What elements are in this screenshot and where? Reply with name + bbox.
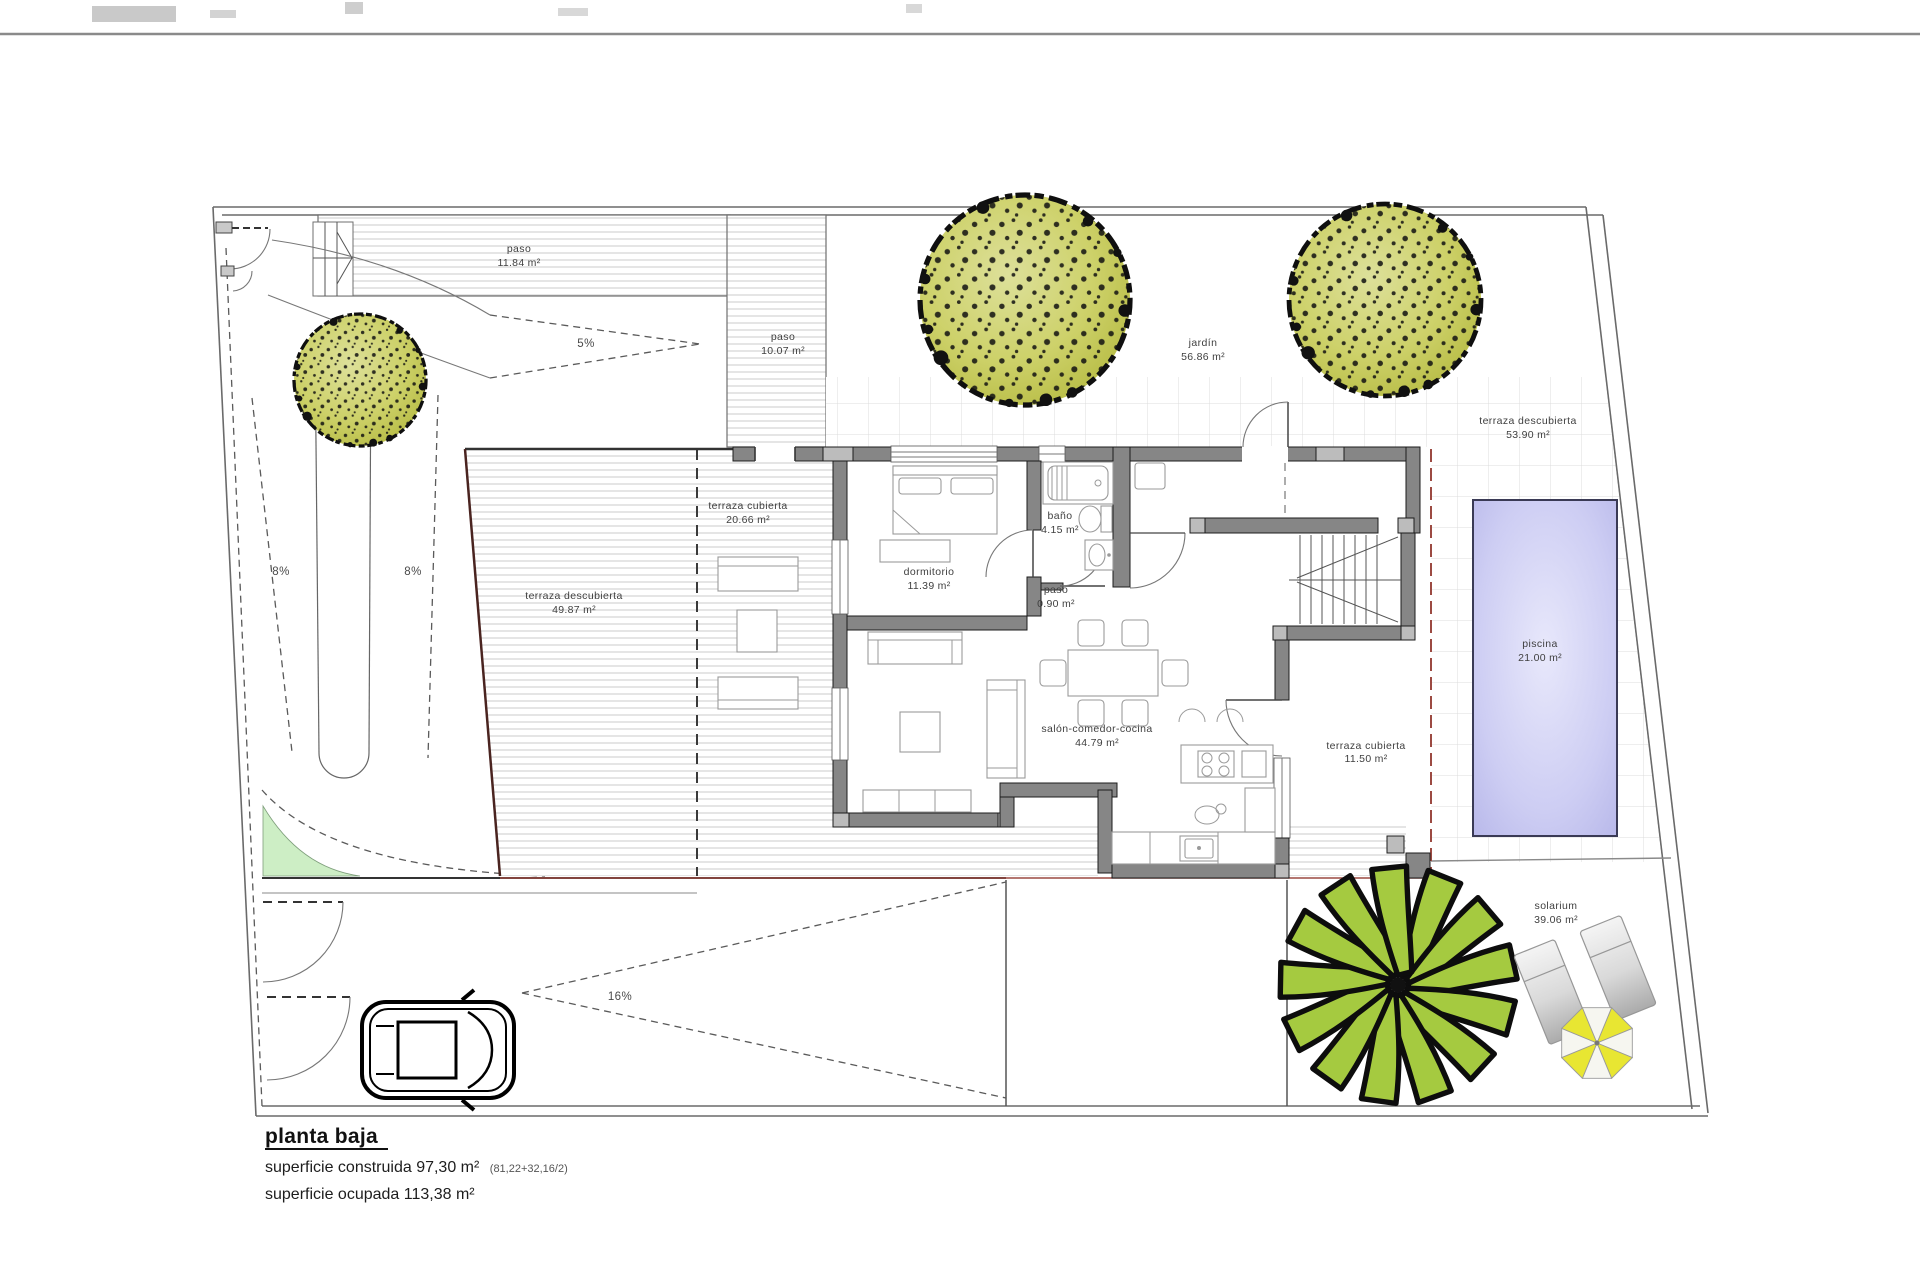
label-jardin-area: 56.86 m² [1181,351,1225,363]
walkway-paso-top [313,215,730,296]
sun-lounger-icon [1580,915,1657,1020]
pool [1473,500,1617,836]
label-terraza-cub-e-name: terraza cubierta [1326,740,1405,752]
bathtub-icon [1043,462,1113,504]
floor-plan-page: paso 11.84 m² paso 10.07 m² jardín 56.86… [0,0,1920,1280]
toilet-icon [1079,506,1112,532]
tree-icon [294,314,427,447]
label-bano-name: baño [1048,510,1073,522]
label-paso-top-name: paso [507,243,531,255]
label-paso-int-area: 0.90 m² [1037,598,1075,610]
label-paso-top-area: 11.84 m² [497,257,540,269]
car-icon [362,990,514,1110]
label-solarium-area: 39.06 m² [1534,914,1578,926]
slope-8pct-right: 8% [404,566,421,578]
plan-title: planta baja [265,1125,378,1148]
top-sheet-edge [0,2,1920,34]
label-terraza-desc-e-name: terraza descubierta [1479,415,1576,427]
built-area-detail: (81,22+32,16/2) [490,1163,568,1175]
parasol-icon [1562,1008,1633,1079]
label-paso-int-name: paso [1044,584,1068,596]
svg-text:superficie construida 97,30 m²: superficie construida 97,30 m² (81,22+32… [265,1159,568,1176]
label-terraza-desc-w-area: 49.87 m² [552,604,596,616]
label-piscina-name: piscina [1522,638,1557,650]
garage-area [262,878,1287,1110]
label-terraza-cub-e-area: 11.50 m² [1344,753,1387,765]
label-paso-vert-area: 10.07 m² [761,345,805,357]
garage-gate-icon [263,902,350,1080]
label-salon-name: salón-comedor-cocina [1041,723,1152,735]
tree-icon [920,195,1131,407]
label-dormitorio-name: dormitorio [904,566,955,578]
label-jardin-name: jardín [1188,337,1218,349]
label-dormitorio-area: 11.39 m² [907,580,950,592]
title-block: planta baja superficie construida 97,30 … [265,1125,568,1203]
floor-plan-canvas: paso 11.84 m² paso 10.07 m² jardín 56.86… [0,0,1920,1280]
label-terraza-cub-w-area: 20.66 m² [726,514,770,526]
slope-16pct: 16% [608,991,632,1003]
fridge-icon [1135,463,1165,489]
window-bedroom [891,446,997,462]
occupied-area-text: superficie ocupada 113,38 m² [265,1186,475,1203]
label-piscina-area: 21.00 m² [1518,652,1562,664]
slope-5pct: 5% [577,338,594,350]
label-terraza-desc-w-name: terraza descubierta [525,590,622,602]
tree-icon [1289,204,1482,398]
label-solarium-name: solarium [1535,900,1578,912]
label-terraza-cub-w-name: terraza cubierta [708,500,787,512]
sink-icon [1085,540,1113,570]
palm-tree-icon [1269,855,1528,1113]
green-area [263,806,360,876]
label-terraza-desc-e-area: 53.90 m² [1506,429,1550,441]
label-bano-area: 4.15 m² [1041,524,1079,536]
label-salon-area: 44.79 m² [1075,737,1119,749]
slope-8pct-left: 8% [272,566,289,578]
label-paso-vert-name: paso [771,331,795,343]
built-area-text: superficie construida 97,30 m² [265,1159,480,1176]
